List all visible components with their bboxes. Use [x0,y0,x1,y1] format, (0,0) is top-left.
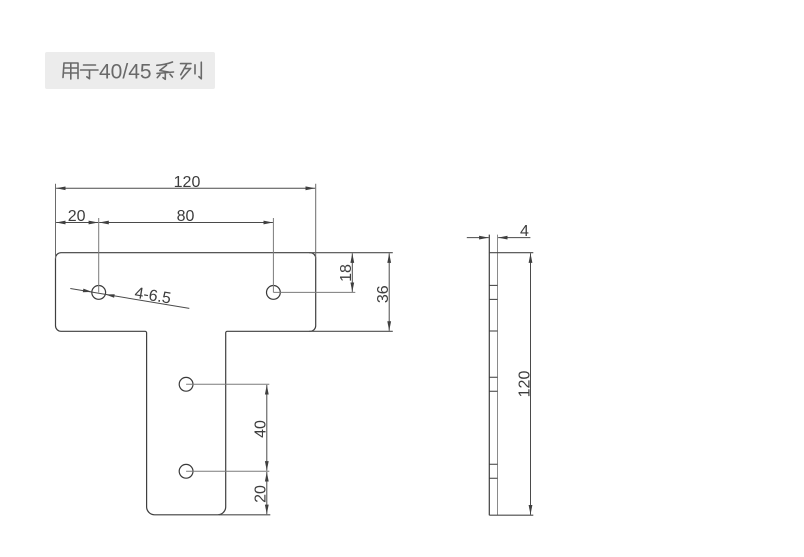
svg-text:18: 18 [338,264,355,282]
svg-text:4: 4 [520,223,529,240]
svg-text:20: 20 [68,208,86,225]
svg-text:80: 80 [177,208,195,225]
svg-text:40: 40 [253,420,270,438]
svg-text:120: 120 [517,371,534,398]
svg-text:36: 36 [375,285,392,303]
svg-text:20: 20 [253,485,270,503]
svg-text:120: 120 [174,174,201,191]
